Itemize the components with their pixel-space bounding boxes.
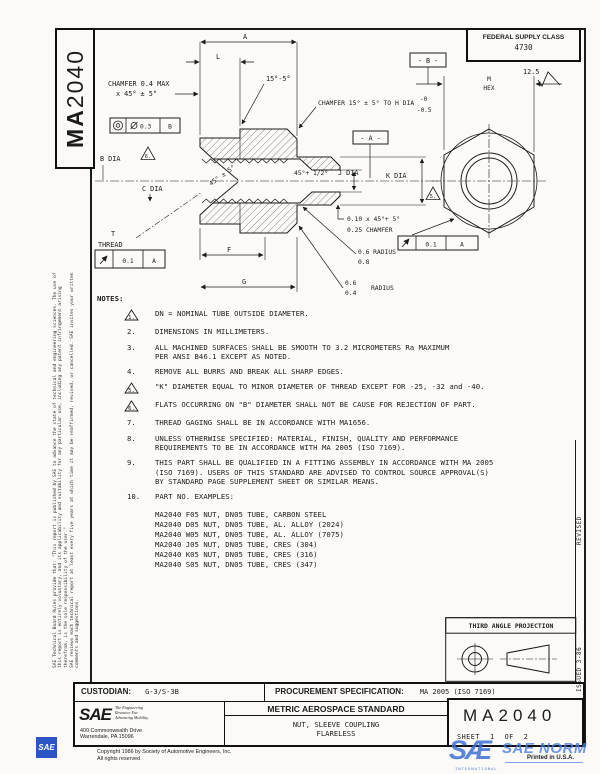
sheet-label: SHEET xyxy=(457,733,480,741)
angle-15-5-label: 15°-5° xyxy=(266,75,291,83)
note-10: 10. PART NO. EXAMPLES: xyxy=(97,492,562,501)
part-example: MA2040 W05 NUT, DN05 TUBE, AL. ALLOY (70… xyxy=(155,530,562,540)
section-upper-half xyxy=(200,129,340,170)
projection-block: THIRD ANGLE PROJECTION xyxy=(445,617,577,682)
note-6: 6. FLATS OCCURRING ON "B" DIAMETER SHALL… xyxy=(97,400,562,412)
standard-type: METRIC AEROSPACE STANDARD xyxy=(225,702,447,716)
part-example: MA2040 D05 NUT, DN05 TUBE, AL. ALLOY (20… xyxy=(155,520,562,530)
flag-6-label: 6. xyxy=(145,154,151,160)
sheet-info: SHEET1OF2 xyxy=(457,733,582,741)
small-chamfer-line1: 0.10 x 45°+ 5° xyxy=(347,215,400,223)
finish-value: 12.5 xyxy=(523,68,539,76)
note-9-line3: BY STANDARD PAGE SUPPLEMENT SHEET OR SIM… xyxy=(155,477,562,486)
note-8-line1: UNLESS OTHERWISE SPECIFIED: MATERIAL, FI… xyxy=(155,434,562,443)
of-label: OF xyxy=(505,733,514,741)
note-4: 4. REMOVE ALL BURRS AND BREAK ALL SHARP … xyxy=(97,367,562,376)
note-8-num: 8. xyxy=(97,434,155,453)
radius1-line1: 0.6 RADIUS xyxy=(358,249,396,256)
angle-leader xyxy=(242,84,264,124)
part-number-examples: MA2040 F05 NUT, DN05 TUBE, CARBON STEEL … xyxy=(155,510,562,570)
fcf2-tol: 0.1 xyxy=(122,258,133,265)
note-1: 1. DN = NOMINAL TUBE OUTSIDE DIAMETER. xyxy=(97,309,562,321)
note-7: 7. THREAD GAGING SHALL BE IN ACCORDANCE … xyxy=(97,418,562,427)
flag-1-triangle: 1. xyxy=(124,309,139,321)
copyright-line1: Copyright 1986 by Society of Automotive … xyxy=(97,749,232,756)
radius2-word: RADIUS xyxy=(371,285,394,292)
dim-f-label: F xyxy=(227,246,231,254)
standard-title-cell: METRIC AEROSPACE STANDARD NUT, SLEEVE CO… xyxy=(225,702,447,747)
datum-b-label: - B - xyxy=(418,57,438,65)
dim-a-label: A xyxy=(243,33,247,41)
watermark-rule xyxy=(505,762,583,763)
fcf1-tol: 0.3 xyxy=(140,124,151,131)
doc-number-large: MA2040 xyxy=(463,706,582,726)
address-line2: Warrendale, PA 15096 xyxy=(80,734,224,740)
flag-6-triangle-note: 6. xyxy=(124,400,139,412)
custodian-label: CUSTODIAN: xyxy=(81,687,131,696)
sae-logo-cell: SAEThe EngineeringResource ForAdvancing … xyxy=(73,702,225,747)
note-4-text: REMOVE ALL BURRS AND BREAK ALL SHARP EDG… xyxy=(155,367,562,376)
note-5-text: "K" DIAMETER EQUAL TO MINOR DIAMETER OF … xyxy=(155,382,562,391)
dim-g-label: G xyxy=(242,278,246,286)
doc-number-prefix: MA xyxy=(62,108,88,148)
dim-l-label: L xyxy=(216,53,220,61)
chamfer-right-leader xyxy=(299,107,316,128)
thread-leader xyxy=(136,192,202,238)
notes-title: NOTES: xyxy=(97,294,562,303)
custodian-cell: CUSTODIAN: G-3/S-3B xyxy=(73,682,265,702)
note-8-line2: REQUIREMENTS TO BE IN ACCORDANCE WITH MA… xyxy=(155,443,562,452)
part-title: NUT, SLEEVE COUPLING FLARELESS xyxy=(225,720,447,738)
note-10-num: 10. xyxy=(97,492,155,501)
printed-in-usa: Printed in U.S.A. xyxy=(527,755,574,761)
sae-logo: SAE xyxy=(79,705,111,725)
fcf1-datum: B xyxy=(168,124,172,131)
procurement-label: PROCUREMENT SPECIFICATION: xyxy=(275,687,404,696)
j-dia-label: J DIA xyxy=(338,169,358,177)
sheet-number: 1 xyxy=(490,733,495,741)
legal-note-1: SAE Technical Board Rules provide that: … xyxy=(53,266,68,668)
flag-5-triangle-note: 5. xyxy=(124,382,139,394)
part-title-line1: NUT, SLEEVE COUPLING xyxy=(225,720,447,729)
sae-tagline: The EngineeringResource ForAdvancing Mob… xyxy=(115,706,149,720)
note-2-text: DIMENSIONS IN MILLIMETERS. xyxy=(155,327,562,336)
chamfer-right-tol-bot: -0.5 xyxy=(417,107,432,114)
part-example: MA2040 S05 NUT, DN05 TUBE, CRES (347) xyxy=(155,560,562,570)
copyright-note: Copyright 1986 by Society of Automotive … xyxy=(97,749,232,762)
watermark-international: INTERNATIONAL xyxy=(455,766,498,771)
note-2: 2. DIMENSIONS IN MILLIMETERS. xyxy=(97,327,562,336)
note-3: 3. ALL MACHINED SURFACES SHALL BE SMOOTH… xyxy=(97,343,562,362)
chamfer-left-line2: x 45° ± 5° xyxy=(116,90,157,98)
part-example: MA2040 K05 NUT, DN05 TUBE, CRES (316) xyxy=(155,550,562,560)
radius2-leader xyxy=(299,226,343,288)
fcf-runout-hex xyxy=(398,219,478,250)
note-5: 5. "K" DIAMETER EQUAL TO MINOR DIAMETER … xyxy=(97,382,562,394)
runout-icon xyxy=(100,256,107,264)
note-2-num: 2. xyxy=(97,327,155,336)
note-9-line1: THIS PART SHALL BE QUALIFIED IN A FITTIN… xyxy=(155,458,562,467)
sae-corner-logo: SAE xyxy=(36,737,57,758)
procurement-value: MA 2005 (ISO 7169) xyxy=(420,688,496,696)
part-title-line2: FLARELESS xyxy=(225,729,447,738)
radius2-top: 0.6 xyxy=(345,280,357,287)
note-4-num: 4. xyxy=(97,367,155,376)
issued-label: ISSUED 3-86 xyxy=(576,612,583,692)
note-9: 9. THIS PART SHALL BE QUALIFIED IN A FIT… xyxy=(97,458,562,486)
drawing-sheet: MA2040 FEDERAL SUPPLY CLASS 4730 SAE Tec… xyxy=(0,0,600,774)
part-example: MA2040 F05 NUT, DN05 TUBE, CARBON STEEL xyxy=(155,510,562,520)
part-example: MA2040 J05 NUT, DN05 TUBE, CRES (304) xyxy=(155,540,562,550)
svg-text:1.: 1. xyxy=(128,315,135,321)
note-9-num: 9. xyxy=(97,458,155,486)
b-dia-label: B DIA xyxy=(100,155,120,163)
k-dia-label: K DIA xyxy=(386,172,406,180)
fcf2-datum: A xyxy=(152,258,156,265)
note-10-text: PART NO. EXAMPLES: xyxy=(155,492,562,501)
sheet-total: 2 xyxy=(524,733,529,741)
runout-icon-2 xyxy=(402,239,409,247)
chamfer-left-line1: CHAMFER 0.4 MAX xyxy=(108,80,170,88)
doc-number-value: 2040 xyxy=(62,49,88,108)
note-1-text: DN = NOMINAL TUBE OUTSIDE DIAMETER. xyxy=(155,309,562,318)
datum-a-label: - A - xyxy=(360,135,380,143)
svg-text:6.: 6. xyxy=(128,406,135,412)
custodian-value: G-3/S-3B xyxy=(145,688,179,696)
small-chamfer-line2: 0.25 CHAMFER xyxy=(347,227,393,234)
note-9-line2: (ISO 7169). USERS OF THIS STANDARD ARE A… xyxy=(155,468,562,477)
note-3-num: 3. xyxy=(97,343,155,362)
chamfer-right-label: CHAMFER 15° ± 5° TO H DIA xyxy=(318,99,414,107)
projection-label: THIRD ANGLE PROJECTION xyxy=(469,622,554,630)
doc-number-tab: MA2040 xyxy=(55,28,95,169)
note-3-line1: ALL MACHINED SURFACES SHALL BE SMOOTH TO… xyxy=(155,343,562,352)
concentricity-icon xyxy=(114,121,123,130)
flag-5-label: 5. xyxy=(430,194,436,200)
c-dia-label: C DIA xyxy=(142,185,162,193)
section-lower-half xyxy=(200,192,340,233)
fcf3-datum: A xyxy=(460,242,464,249)
seat-angle-label: 45°+ 1/2° xyxy=(294,169,328,177)
revised-label: REVISED xyxy=(576,445,583,545)
note-3-line2: PER ANSI B46.1 EXCEPT AS NOTED. xyxy=(155,352,562,361)
copyright-line2: All rights reserved xyxy=(97,756,232,763)
chamfer-right-tol-top: -0 xyxy=(420,96,428,103)
radius1-line2: 0.8 xyxy=(358,259,370,266)
thread-word-label: THREAD xyxy=(98,241,123,249)
legal-note-2: SAE reviews each technical report at lea… xyxy=(70,270,82,668)
dim-a-ext xyxy=(200,42,297,136)
note-8: 8. UNLESS OTHERWISE SPECIFIED: MATERIAL,… xyxy=(97,434,562,453)
svg-text:5.: 5. xyxy=(128,388,135,394)
fcf3-tol: 0.1 xyxy=(425,242,436,249)
note-7-num: 7. xyxy=(97,418,155,427)
hex-word-label: HEX xyxy=(483,85,494,92)
notes-section: NOTES: 1. DN = NOMINAL TUBE OUTSIDE DIAM… xyxy=(97,294,562,570)
sae-address: 400 Commonwealth Drive Warrendale, PA 15… xyxy=(80,728,224,741)
small-chamfer-leader xyxy=(338,205,344,219)
note-6-text: FLATS OCCURRING ON "B" DIAMETER SHALL NO… xyxy=(155,400,562,409)
thread-t-label: T xyxy=(111,230,115,238)
doc-number-cell: MA2040 SHEET1OF2 xyxy=(447,698,584,747)
section-and-hex-views: A L F G CHAMFER 0.4 MAX x 45° ± 5° 15°-5… xyxy=(90,28,586,302)
hex-m-label: M xyxy=(487,76,491,83)
note-7-text: THREAD GAGING SHALL BE IN ACCORDANCE WIT… xyxy=(155,418,562,427)
